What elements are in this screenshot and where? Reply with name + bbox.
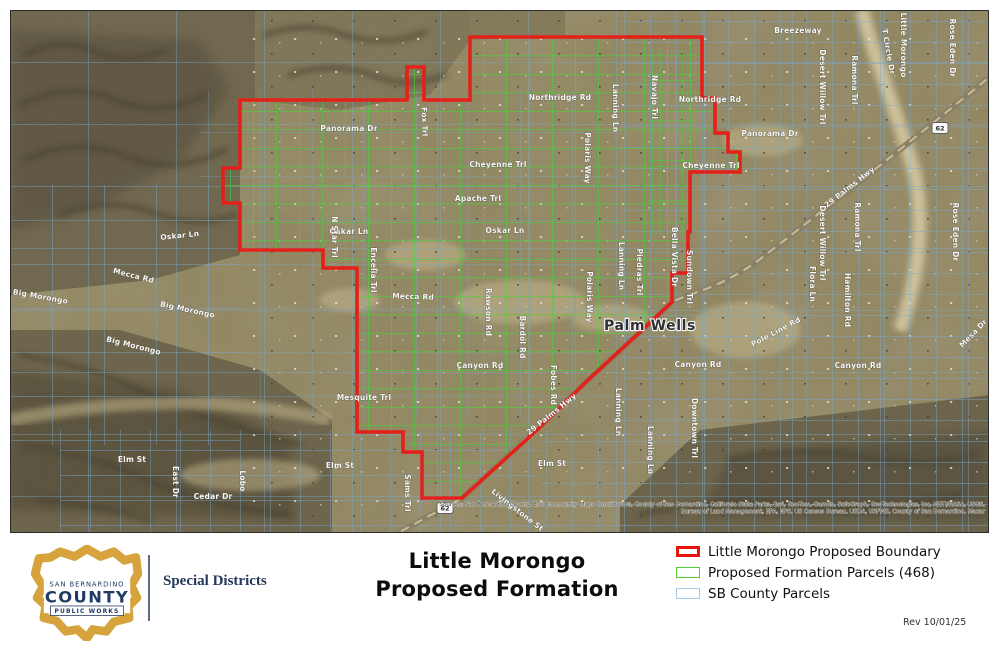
street-label: Desert Willow Trl: [818, 205, 827, 280]
aerial-map: 6262 BreezewayNorthridge RdNorthridge Rd…: [10, 10, 989, 533]
street-label: Canyon Rd: [675, 360, 722, 369]
street-label: Encelia Trl: [369, 247, 378, 293]
street-label: Oskar Ln: [486, 226, 525, 235]
legend-swatch: [676, 567, 700, 578]
footer-divider: [148, 555, 150, 621]
street-label: Lobo: [238, 470, 247, 491]
legend-row: Proposed Formation Parcels (468): [676, 562, 941, 583]
street-label: Bardol Rd: [518, 315, 527, 358]
street-label: Elm St: [118, 455, 147, 464]
street-label: Little Morongo: [899, 13, 908, 78]
street-label: Piedras Trl: [635, 248, 644, 295]
legend-row: Little Morongo Proposed Boundary: [676, 541, 941, 562]
route-shield-62: 62: [932, 123, 948, 134]
street-label: Elm St: [326, 461, 355, 470]
street-label: Canyon Rd: [835, 361, 882, 370]
street-label: Downtown Trl: [690, 398, 699, 458]
street-label: Ramona Trl: [850, 55, 859, 104]
street-label: Bella Vista Dr: [670, 227, 679, 287]
street-label: Rawson Rd: [484, 288, 493, 336]
street-label: Fobes Rd: [549, 365, 558, 405]
footer-bar: SAN BERNARDINO COUNTY PUBLIC WORKS Speci…: [0, 533, 1001, 647]
street-label: Rose Eden Dr: [951, 203, 960, 262]
map-title-line1: Little Morongo: [327, 547, 667, 575]
map-title: Little Morongo Proposed Formation: [327, 547, 667, 603]
legend: Little Morongo Proposed BoundaryProposed…: [676, 541, 941, 604]
street-label: Hamilton Rd: [843, 273, 852, 327]
street-label: Mesquite Trl: [337, 393, 392, 402]
legend-swatch: [676, 546, 700, 557]
street-label: Polaris Way: [585, 271, 594, 323]
svg-text:62: 62: [935, 124, 944, 132]
street-label: Navajo Trl: [650, 75, 659, 119]
street-label: Elm St: [538, 459, 567, 468]
legend-swatch: [676, 588, 700, 599]
street-label: Cedar Dr: [194, 492, 233, 501]
street-label: Cheyenne Trl: [469, 160, 526, 169]
street-label: East Dr: [171, 466, 180, 498]
map-canvas: 6262 BreezewayNorthridge RdNorthridge Rd…: [10, 10, 989, 533]
street-label: Lanning Ln: [614, 388, 623, 437]
street-label: Fox Trl: [419, 107, 429, 137]
county-logo: SAN BERNARDINO COUNTY PUBLIC WORKS: [28, 545, 146, 641]
street-label: Flora Ln: [808, 266, 817, 302]
logo-line2: COUNTY: [45, 588, 129, 607]
street-label: Sams Trl: [403, 474, 412, 512]
street-label: N Star Trl: [330, 216, 339, 258]
street-label: Apache Trl: [455, 194, 501, 203]
street-label: Lanning Ln: [617, 242, 626, 291]
map-title-line2: Proposed Formation: [327, 575, 667, 603]
street-label: Canyon Rd: [457, 361, 504, 370]
legend-row: SB County Parcels: [676, 583, 941, 604]
street-label: Sundown Trl: [685, 250, 694, 304]
street-label: Lanning Ln: [646, 426, 655, 475]
street-label: Panorama Dr: [741, 129, 798, 138]
street-label: Desert Willow Trl: [818, 49, 827, 124]
street-label: Northridge Rd: [529, 93, 592, 102]
street-label: Panorama Dr: [320, 124, 377, 133]
legend-label: Proposed Formation Parcels (468): [708, 565, 935, 581]
street-label: Rose Eden Dr: [948, 19, 957, 78]
legend-label: Little Morongo Proposed Boundary: [708, 544, 941, 560]
department-label: Special Districts: [163, 573, 267, 590]
street-label: Polaris Way: [583, 132, 592, 184]
street-label: Mecca Rd: [392, 291, 434, 301]
map-attribution-line1: Sources: San Bernardino County, Esri Com…: [439, 502, 985, 508]
street-label: Northridge Rd: [679, 95, 742, 104]
logo-line3: PUBLIC WORKS: [55, 608, 120, 615]
map-attribution-line2: Bureau of Land Management, EPA, NPS, US …: [681, 509, 986, 515]
place-label-palm-wells: Palm Wells: [604, 318, 696, 334]
revision-label: Rev 10/01/25: [903, 617, 966, 628]
street-label: Breezeway: [774, 26, 822, 35]
legend-label: SB County Parcels: [708, 586, 830, 602]
map-sheet: 6262 BreezewayNorthridge RdNorthridge Rd…: [0, 0, 1001, 647]
street-label: Ramona Trl: [853, 202, 862, 251]
street-label: Cheyenne Trl: [682, 161, 739, 170]
street-label: Lanning Ln: [611, 84, 620, 133]
